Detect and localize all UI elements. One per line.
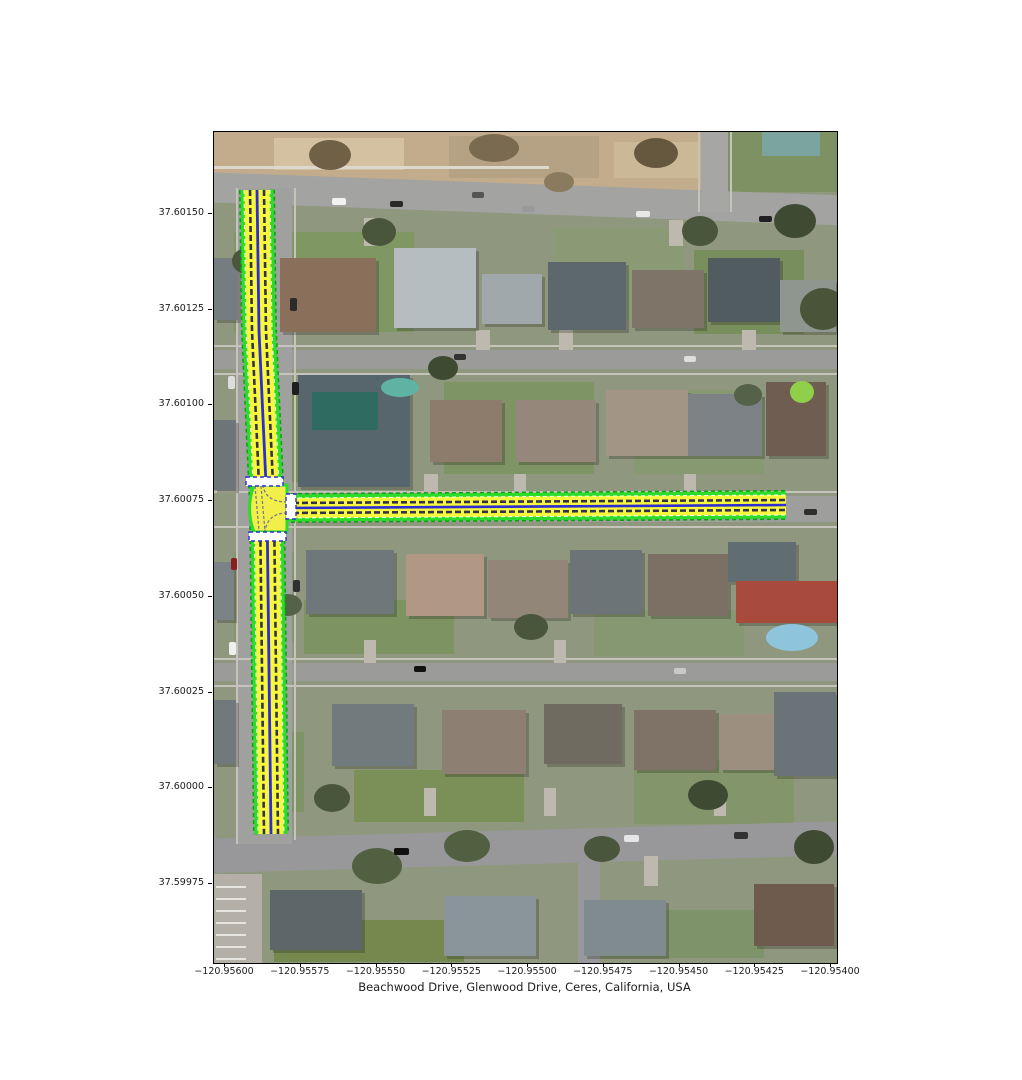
y-tick-mark: [208, 883, 212, 884]
y-tick-label: 37.60025: [138, 686, 204, 697]
y-tick-mark: [208, 692, 212, 693]
x-axis-label: Beachwood Drive, Glenwood Drive, Ceres, …: [213, 980, 836, 994]
map-plot: [213, 131, 838, 964]
y-tick-label: 37.60050: [138, 590, 204, 601]
y-tick-label: 37.60000: [138, 781, 204, 792]
y-tick-label: 37.60100: [138, 398, 204, 409]
x-tick-label: −120.95500: [487, 966, 567, 977]
x-tick-label: −120.95400: [790, 966, 870, 977]
x-tick-label: −120.95550: [336, 966, 416, 977]
y-tick-mark: [208, 596, 212, 597]
y-tick-mark: [208, 213, 212, 214]
x-tick-label: −120.95450: [639, 966, 719, 977]
y-tick-label: 37.60125: [138, 303, 204, 314]
y-tick-mark: [208, 309, 212, 310]
x-tick-label: −120.95600: [184, 966, 264, 977]
road-network-overlay: [214, 132, 837, 963]
x-tick-label: −120.95575: [260, 966, 340, 977]
x-tick-label: −120.95425: [714, 966, 794, 977]
crosswalk: [246, 477, 283, 486]
matplotlib-figure: −120.95600−120.95575−120.95550−120.95525…: [0, 0, 1022, 1080]
y-tick-label: 37.60075: [138, 494, 204, 505]
x-tick-label: −120.95525: [411, 966, 491, 977]
y-tick-mark: [208, 500, 212, 501]
x-tick-label: −120.95475: [563, 966, 643, 977]
y-tick-label: 37.59975: [138, 877, 204, 888]
y-tick-label: 37.60150: [138, 207, 204, 218]
crosswalk: [249, 532, 286, 541]
y-tick-mark: [208, 404, 212, 405]
y-tick-mark: [208, 787, 212, 788]
crosswalk: [286, 494, 296, 519]
